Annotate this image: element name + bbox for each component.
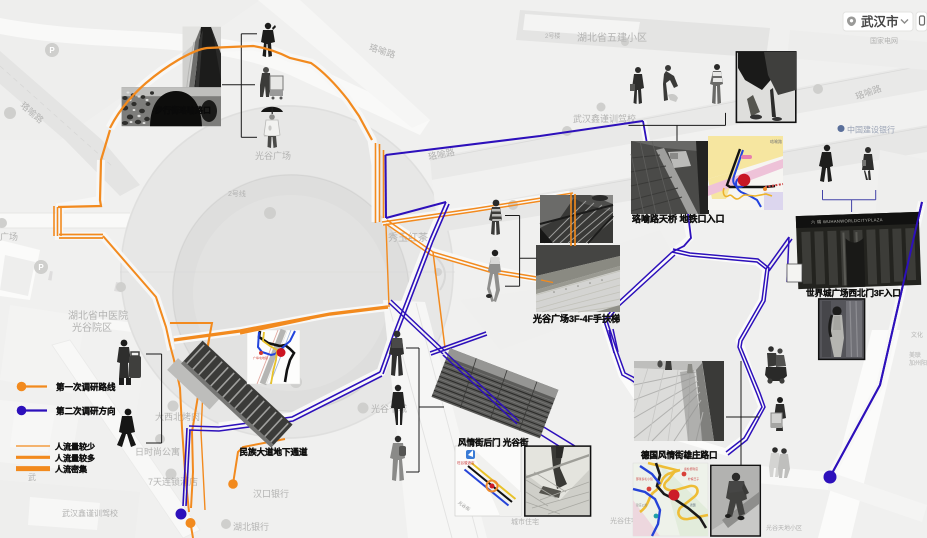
svg-text:光谷院区: 光谷院区 [72,321,112,334]
svg-text:日时尚公寓: 日时尚公寓 [135,446,180,457]
svg-text:珞喻路: 珞喻路 [770,138,782,144]
svg-text:步行街珞喻路口: 步行街珞喻路口 [155,105,211,115]
svg-text:武汉鑫谨训驾校: 武汉鑫谨训驾校 [62,508,118,518]
svg-text:7天连锁酒店: 7天连锁酒店 [148,476,198,487]
svg-text:汉口银行: 汉口银行 [253,488,289,499]
svg-text:湖北银行: 湖北银行 [233,521,269,532]
svg-text:光谷广场: 光谷广场 [255,150,291,161]
svg-text:德国风情街雄庄路口: 德国风情街雄庄路口 [641,450,718,460]
svg-text:中国建设银行: 中国建设银行 [847,125,895,135]
svg-text:湖北省五建小区: 湖北省五建小区 [577,31,647,44]
svg-text:旺谷骏酒店: 旺谷骏酒店 [457,460,475,465]
svg-text:城市住宅: 城市住宅 [511,517,539,526]
svg-text:第二次调研方向: 第二次调研方向 [56,406,116,416]
svg-text:人流密集: 人流密集 [55,464,88,474]
svg-text:第一次调研路线: 第一次调研路线 [56,382,116,392]
svg-text:人流量较多: 人流量较多 [55,453,95,463]
svg-text:P: P [49,46,55,55]
svg-text:国家电网: 国家电网 [870,36,898,45]
svg-text:武汉市: 武汉市 [861,14,899,29]
svg-text:光谷天地小区: 光谷天地小区 [766,524,802,532]
svg-text:德国: 德国 [690,503,696,507]
svg-text:P: P [38,263,44,272]
svg-text:广埠屯地铁: 广埠屯地铁 [253,355,268,360]
svg-text:世界城广场西北门3F入口: 世界城广场西北门3F入口 [806,288,901,298]
svg-text:秀玉红茶: 秀玉红茶 [388,231,428,244]
svg-text:康谷便利店: 康谷便利店 [684,467,698,471]
svg-text:那莱泰礼小馆: 那莱泰礼小馆 [636,477,653,481]
svg-text:广场: 广场 [0,231,18,242]
svg-text:柠檬王子: 柠檬王子 [688,477,699,481]
svg-text:光谷广场3F-4F手扶梯: 光谷广场3F-4F手扶梯 [532,313,620,324]
svg-text:武: 武 [28,472,36,482]
svg-text:珞喻路天桥 地铁口入口: 珞喻路天桥 地铁口入口 [632,213,725,224]
svg-text:湖北省中医院: 湖北省中医院 [68,309,128,322]
svg-text:民族大道地下通道: 民族大道地下通道 [240,447,309,457]
svg-text:锦庄公寓: 锦庄公寓 [636,503,647,507]
svg-text:风情街后门 光谷街: 风情街后门 光谷街 [458,438,529,448]
svg-text:人流量较少: 人流量较少 [55,442,95,452]
svg-text:加州阳光: 加州阳光 [909,359,927,367]
svg-text:文化: 文化 [911,331,923,339]
svg-text:美联: 美联 [909,351,921,359]
svg-text:2号楼: 2号楼 [545,32,560,40]
svg-text:2号线: 2号线 [228,189,246,198]
svg-text:武汉鑫谨训驾校: 武汉鑫谨训驾校 [573,113,636,124]
